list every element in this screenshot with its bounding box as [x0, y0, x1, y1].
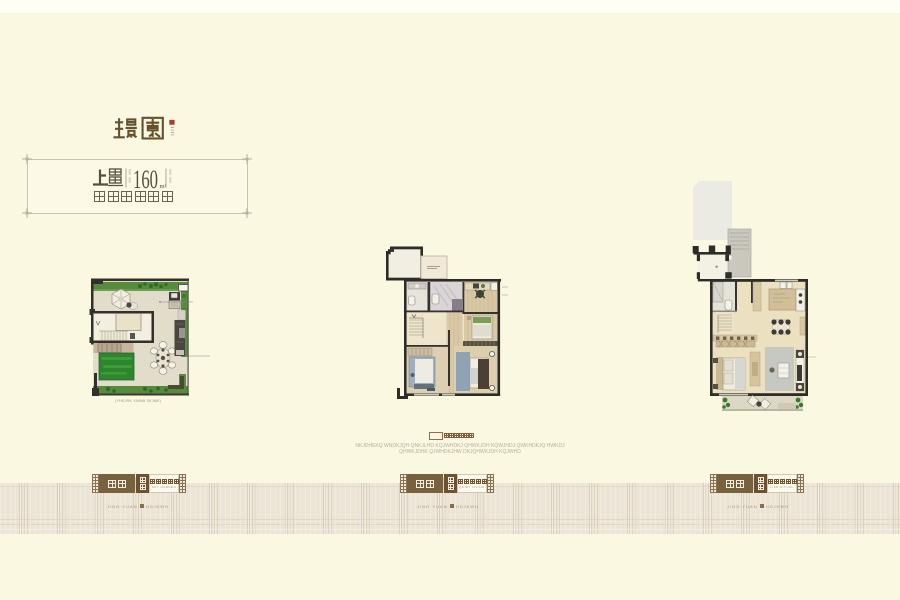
svg-text:m²: m²	[160, 183, 167, 190]
svg-text:160: 160	[133, 166, 158, 190]
